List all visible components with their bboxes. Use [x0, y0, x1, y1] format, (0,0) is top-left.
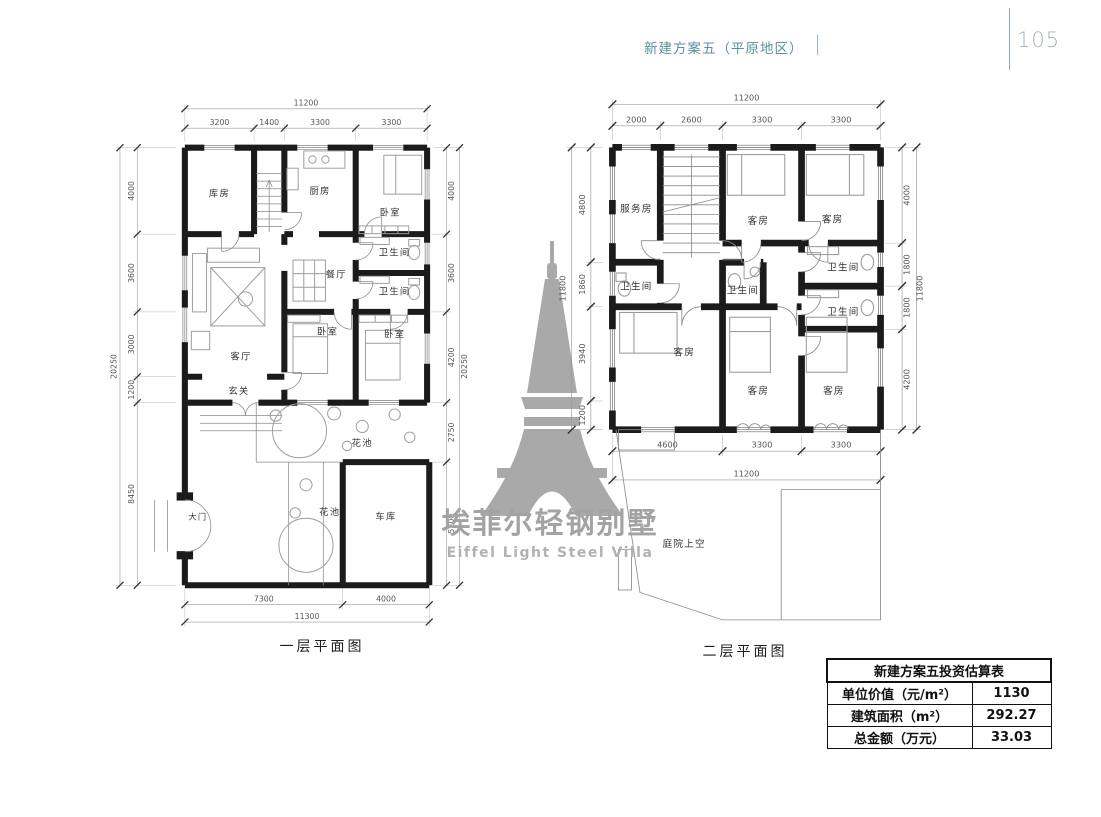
- dim-label: 2750: [447, 422, 456, 442]
- page-number: 105: [1017, 28, 1060, 52]
- room-label: 玄关: [228, 385, 249, 397]
- dim-label: 3200: [210, 118, 230, 127]
- dim-label: 11200: [734, 93, 760, 103]
- dim-label: 3300: [310, 118, 330, 127]
- room-label: 客房: [748, 385, 770, 397]
- dim-label: 3600: [127, 263, 136, 283]
- estimate-row-value: 33.03: [972, 727, 1051, 749]
- dim-label: 1860: [577, 274, 587, 295]
- room-label: 服务房: [620, 203, 652, 215]
- table-row: 建筑面积（m²） 292.27: [827, 705, 1051, 727]
- dim-label: 8450: [127, 484, 136, 504]
- dim-label: 1400: [259, 118, 279, 127]
- chapter-title: 新建方案五（平原地区）: [644, 37, 804, 57]
- dim-label: 1200: [127, 380, 136, 400]
- estimate-row-value: 1130: [972, 682, 1051, 705]
- room-label: 卫生间: [379, 286, 411, 298]
- room-label: 卧室: [317, 326, 338, 338]
- floor1-dimension-labels: 3200 1400 3300 3300 11200 7300 4000 1130…: [110, 99, 469, 621]
- room-label: 库房: [209, 187, 230, 199]
- room-label: 卫生间: [827, 306, 859, 318]
- floor1-stairs: [256, 174, 282, 232]
- room-label: 厨房: [309, 185, 330, 197]
- dim-label: 7300: [254, 594, 274, 603]
- room-label: 卧室: [384, 328, 405, 340]
- table-row: 单位价值（元/m²） 1130: [827, 682, 1051, 705]
- dim-label: 1800: [901, 254, 911, 275]
- dim-label: 3300: [831, 114, 852, 124]
- dim-label: 3300: [382, 118, 402, 127]
- watermark-chinese-text: 埃菲尔轻钢别墅: [425, 500, 675, 542]
- room-label: 花池: [319, 506, 340, 518]
- dim-label: 4000: [447, 181, 456, 201]
- dim-label: 1800: [901, 297, 911, 318]
- room-label: 客房: [748, 215, 770, 227]
- table-row: 总金额（万元） 33.03: [827, 727, 1051, 749]
- dim-label: 3000: [127, 334, 136, 354]
- dim-label: 11200: [294, 99, 319, 108]
- dim-label: 11300: [295, 612, 320, 621]
- estimate-row-label: 单位价值（元/m²）: [827, 682, 972, 705]
- dim-label: 20250: [460, 354, 469, 379]
- room-label: 卫生间: [827, 262, 859, 274]
- room-label: 车库: [375, 510, 396, 522]
- estimate-row-value: 292.27: [972, 705, 1051, 727]
- room-label: 卫生间: [620, 281, 652, 293]
- investment-estimate-table: 新建方案五投资估算表 单位价值（元/m²） 1130 建筑面积（m²） 292.…: [826, 658, 1052, 749]
- room-label: 卧室: [380, 207, 401, 219]
- room-label: 大门: [188, 511, 207, 521]
- room-label: 客厅: [231, 350, 252, 362]
- floor1-plan: 3200 1400 3300 3300 11200 7300 4000 1130…: [107, 85, 479, 662]
- dim-label: 3300: [752, 114, 773, 124]
- estimate-row-label: 建筑面积（m²）: [827, 705, 972, 727]
- page-number-rule: [1009, 8, 1010, 70]
- dim-label: 4200: [447, 347, 456, 367]
- room-label: 花池: [352, 437, 373, 449]
- dim-label: 11800: [914, 276, 924, 302]
- dim-label: 4200: [901, 369, 911, 390]
- room-label: 卫生间: [727, 284, 759, 296]
- dim-label: 3300: [831, 440, 852, 450]
- dim-label: 4800: [577, 194, 587, 215]
- dim-label: 3600: [447, 263, 456, 283]
- document-page: 新建方案五（平原地区） 105 埃菲尔轻钢别墅 Eiffel Light Ste…: [0, 0, 1101, 817]
- dim-label: 3940: [577, 344, 587, 365]
- dim-label: 4000: [901, 185, 911, 206]
- dim-label: 11200: [734, 468, 760, 478]
- room-label: 客房: [823, 385, 845, 397]
- dim-label: 1200: [577, 405, 587, 426]
- dim-label: 2000: [626, 114, 647, 124]
- dim-label: 2600: [681, 114, 702, 124]
- estimate-table-title: 新建方案五投资估算表: [827, 659, 1051, 682]
- floor2-stairs: [663, 155, 720, 258]
- room-label: 餐厅: [326, 268, 347, 280]
- room-label: 客房: [822, 214, 844, 226]
- estimate-row-label: 总金额（万元）: [827, 727, 972, 749]
- dim-label: 4000: [376, 594, 396, 603]
- dim-label: 11800: [558, 276, 568, 302]
- dim-label: 20250: [110, 354, 119, 379]
- room-label: 客房: [673, 347, 695, 359]
- dim-label: 3300: [752, 440, 773, 450]
- room-label: 卫生间: [379, 247, 411, 259]
- watermark-english-text: Eiffel Light Steel Villa: [425, 545, 675, 561]
- dim-label: 4000: [127, 181, 136, 201]
- floor1-dimension-lines: [117, 105, 463, 625]
- floor2-furniture: [616, 155, 874, 450]
- header-separator: [817, 35, 818, 55]
